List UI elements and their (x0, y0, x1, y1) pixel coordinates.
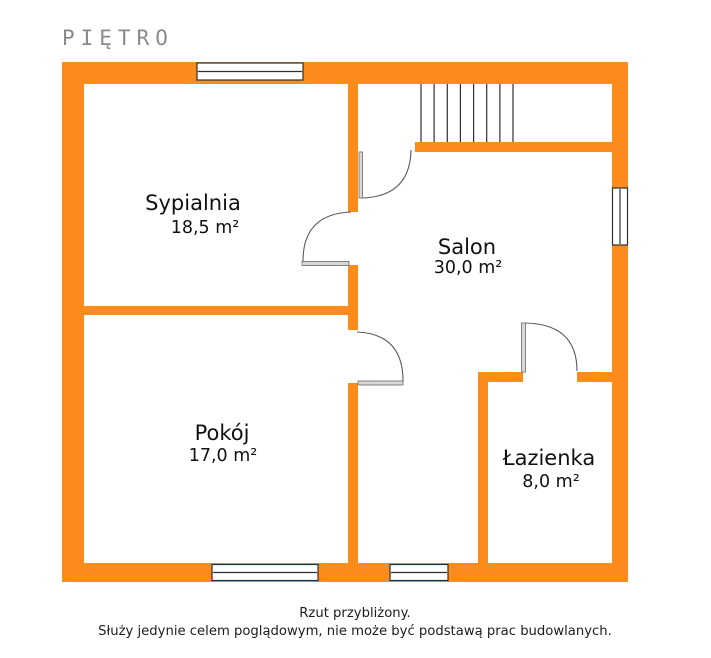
windows (197, 63, 628, 581)
stairs-symbol (421, 84, 513, 142)
wall-center-lower (348, 383, 358, 563)
wall-bathroom-top-right (577, 372, 612, 382)
window-symbol-bottom-right (390, 565, 448, 581)
window-symbol-top (197, 63, 303, 80)
room-labels: Sypialnia 18,5 m² Salon 30,0 m² Pokój 17… (145, 191, 595, 492)
room-area-sypialnia: 18,5 m² (171, 218, 240, 238)
door-symbol-sypialnia (302, 212, 351, 266)
walls (62, 62, 628, 582)
door-symbol-pokoj (357, 332, 403, 385)
window-symbol-right (613, 188, 628, 245)
wall-stairs (415, 142, 612, 152)
wall-bathroom-top-left (478, 372, 523, 382)
wall-center-middle (348, 265, 358, 330)
disclaimer: Rzut przybliżony. Służy jedynie celem po… (98, 606, 612, 639)
floor-plan-canvas: PIĘTRO (0, 0, 711, 658)
window-symbol-bottom-left (212, 565, 318, 581)
floor-plan-page: PIĘTRO (0, 0, 711, 658)
disclaimer-line-1: Rzut przybliżony. (299, 606, 411, 621)
door-symbol-lazienka (522, 323, 578, 372)
room-label-sypialnia: Sypialnia (145, 191, 241, 215)
room-label-lazienka: Łazienka (502, 446, 595, 470)
room-area-salon: 30,0 m² (434, 258, 503, 278)
wall-bottom (62, 563, 628, 582)
room-area-lazienka: 8,0 m² (522, 472, 579, 492)
wall-left (62, 62, 84, 582)
wall-top (62, 62, 628, 84)
wall-right (612, 62, 628, 582)
wall-bathroom-left (478, 382, 488, 563)
wall-room-divider (84, 306, 348, 315)
wall-center-upper (348, 84, 358, 212)
door-symbol-landing (359, 150, 411, 198)
room-label-salon: Salon (438, 235, 496, 259)
disclaimer-line-2: Służy jedynie celem poglądowym, nie może… (98, 623, 612, 639)
page-title: PIĘTRO (62, 26, 174, 50)
room-area-pokoj: 17,0 m² (189, 446, 258, 466)
room-label-pokoj: Pokój (195, 421, 250, 445)
